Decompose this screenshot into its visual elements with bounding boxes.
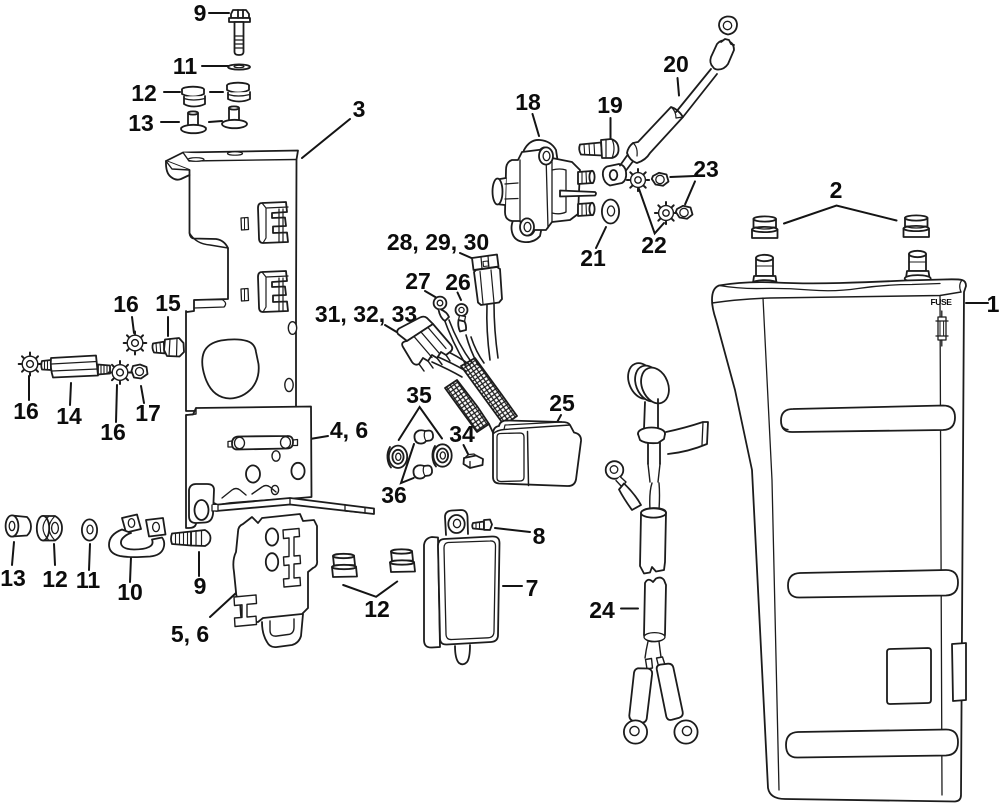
svg-text:21: 21 [580,245,606,271]
svg-text:35: 35 [406,382,432,408]
svg-text:15: 15 [155,290,181,316]
svg-text:27: 27 [405,268,431,294]
svg-text:18: 18 [515,89,541,115]
svg-text:28, 29, 30: 28, 29, 30 [387,229,489,255]
svg-text:FUSE: FUSE [930,297,952,307]
svg-text:5, 6: 5, 6 [171,621,209,647]
svg-text:11: 11 [173,53,198,79]
svg-text:25: 25 [549,390,575,416]
svg-text:16: 16 [100,419,126,445]
svg-text:3: 3 [353,96,366,122]
svg-text:4, 6: 4, 6 [330,417,368,443]
svg-text:16: 16 [13,398,39,424]
svg-text:26: 26 [445,269,471,295]
svg-text:7: 7 [526,575,539,601]
svg-text:24: 24 [589,597,615,623]
svg-text:17: 17 [135,400,161,426]
svg-text:12: 12 [364,596,390,622]
svg-text:23: 23 [693,156,719,182]
svg-text:12: 12 [131,80,157,106]
svg-text:2: 2 [830,177,843,203]
svg-text:8: 8 [533,523,546,549]
svg-text:36: 36 [381,482,407,508]
svg-text:13: 13 [0,565,26,591]
svg-text:9: 9 [194,573,207,599]
svg-text:1: 1 [987,291,1000,317]
svg-text:12: 12 [42,566,68,592]
svg-text:20: 20 [663,51,689,77]
svg-text:16: 16 [113,291,139,317]
svg-text:11: 11 [76,567,101,593]
svg-text:9: 9 [194,0,207,26]
svg-text:22: 22 [641,232,667,258]
svg-text:14: 14 [56,403,82,429]
svg-text:31, 32, 33: 31, 32, 33 [315,301,417,327]
svg-text:19: 19 [597,92,623,118]
svg-text:13: 13 [128,110,154,136]
